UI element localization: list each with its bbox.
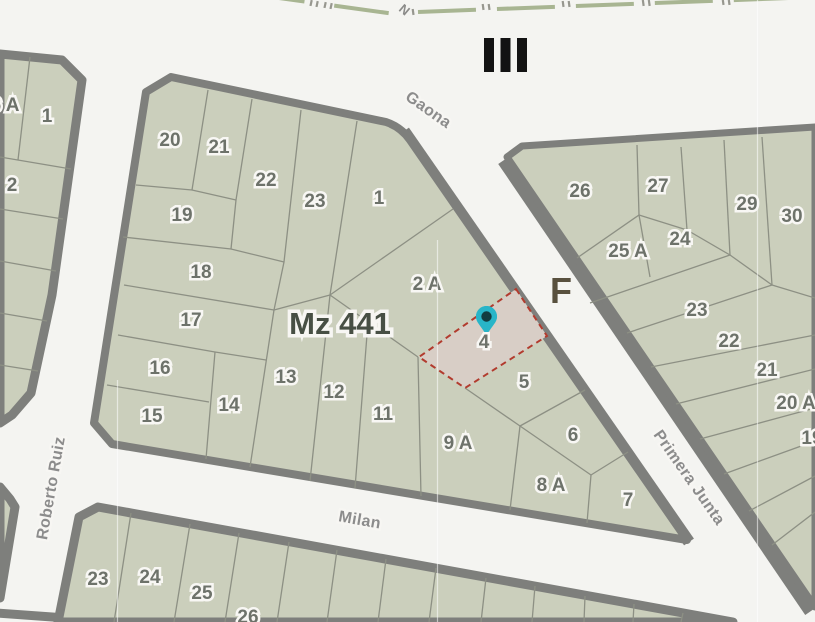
svg-text:7: 7 [623, 490, 634, 511]
svg-text:11: 11 [373, 404, 394, 425]
svg-text:4: 4 [479, 332, 490, 353]
svg-text:22: 22 [255, 170, 276, 191]
svg-text:25: 25 [191, 583, 213, 604]
svg-text:21: 21 [756, 360, 778, 381]
svg-text:26: 26 [569, 181, 590, 202]
svg-text:1: 1 [374, 188, 385, 209]
svg-text:17: 17 [180, 310, 201, 331]
svg-text:F: F [550, 270, 572, 311]
svg-text:20 A: 20 A [776, 393, 815, 414]
svg-text:26: 26 [237, 607, 258, 622]
svg-text:23: 23 [87, 569, 108, 590]
svg-text:5: 5 [519, 372, 530, 393]
svg-text:22: 22 [718, 331, 739, 352]
svg-text:30: 30 [781, 206, 802, 227]
svg-text:12: 12 [323, 382, 344, 403]
svg-text:19: 19 [801, 428, 815, 449]
svg-text:20: 20 [159, 130, 180, 151]
svg-text:18: 18 [190, 262, 211, 283]
svg-text:23: 23 [686, 300, 707, 321]
svg-text:15: 15 [141, 406, 163, 427]
svg-text:Mz 441: Mz 441 [289, 306, 391, 341]
svg-text:25 A: 25 A [608, 241, 648, 262]
svg-text:9 A: 9 A [444, 433, 473, 454]
svg-text:6: 6 [568, 425, 579, 446]
svg-text:27: 27 [647, 176, 668, 197]
svg-text:1: 1 [42, 106, 53, 127]
svg-text:24: 24 [139, 567, 161, 588]
svg-text:29: 29 [736, 194, 757, 215]
svg-text:21: 21 [208, 137, 230, 158]
svg-text:24: 24 [669, 229, 691, 250]
svg-text:2: 2 [7, 175, 18, 196]
svg-text:13: 13 [275, 367, 296, 388]
svg-text:6 A: 6 A [0, 95, 20, 116]
svg-text:8 A: 8 A [537, 475, 566, 496]
svg-text:14: 14 [218, 395, 240, 416]
svg-text:16: 16 [149, 358, 170, 379]
svg-text:23: 23 [304, 191, 325, 212]
svg-text:19: 19 [171, 205, 192, 226]
